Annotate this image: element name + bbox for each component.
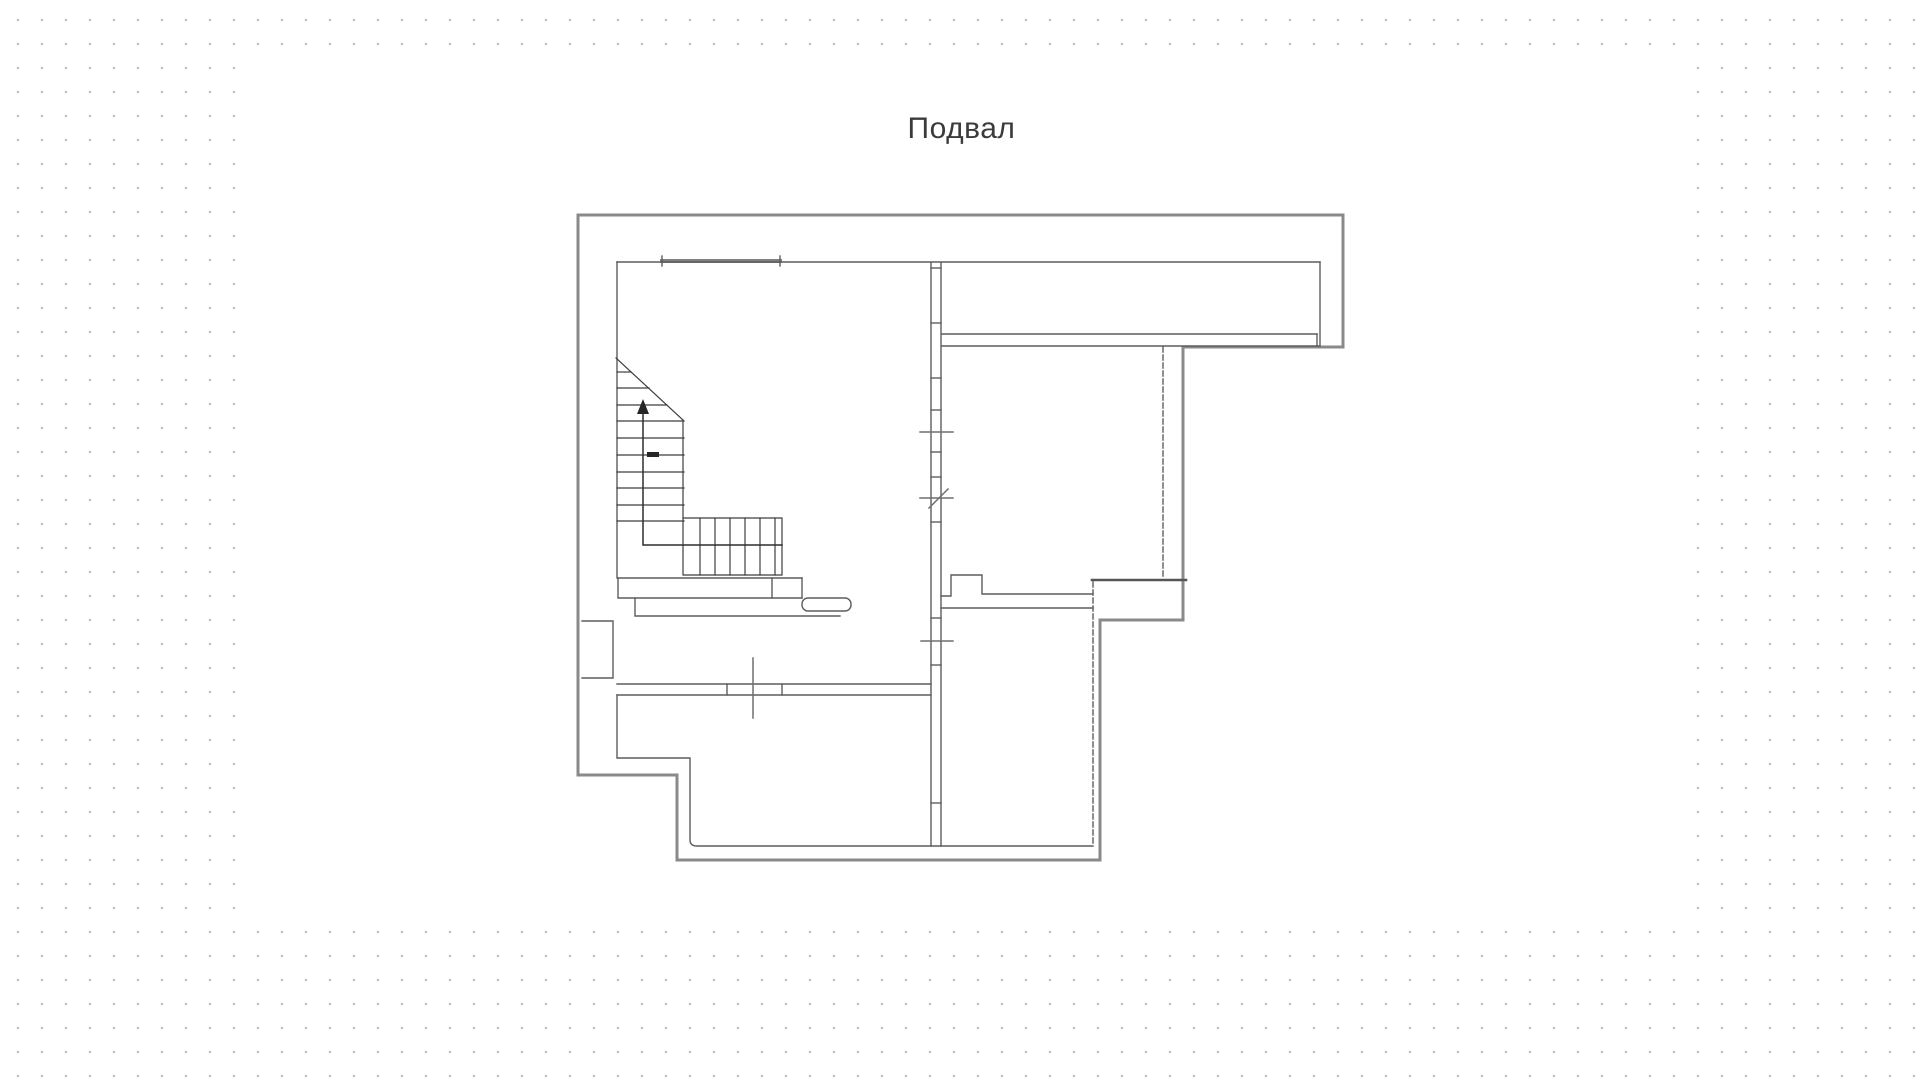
inner-walls — [582, 256, 1320, 846]
staircase — [616, 358, 782, 575]
stair-walking-line — [643, 410, 782, 545]
floor-plan — [0, 0, 1920, 1078]
markers — [753, 432, 953, 718]
dashed-walls — [1093, 347, 1163, 843]
stair-arrow-fills — [637, 399, 659, 457]
outer-walls — [578, 215, 1343, 860]
page-canvas: Подвал — [0, 0, 1920, 1078]
